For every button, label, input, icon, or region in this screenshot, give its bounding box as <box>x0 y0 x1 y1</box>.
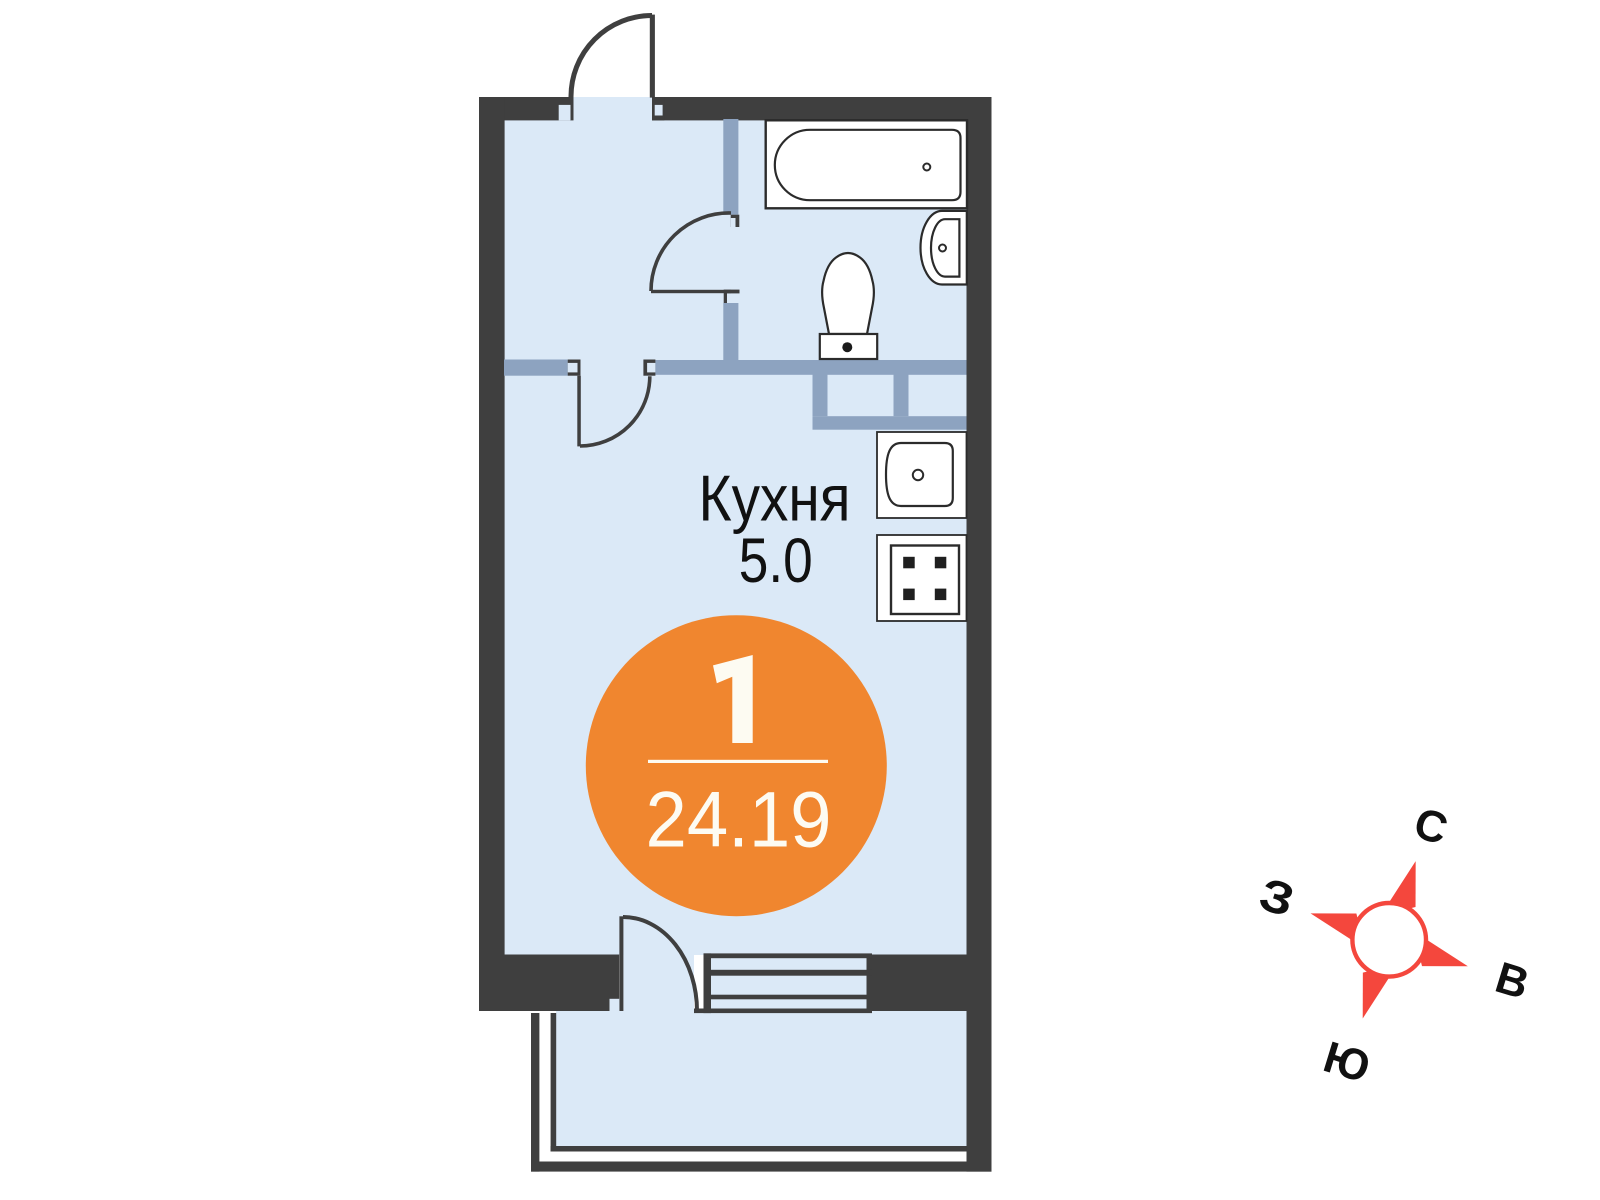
svg-text:24.19: 24.19 <box>646 775 832 864</box>
svg-text:5.0: 5.0 <box>739 526 813 596</box>
svg-text:Кухня: Кухня <box>699 463 851 535</box>
